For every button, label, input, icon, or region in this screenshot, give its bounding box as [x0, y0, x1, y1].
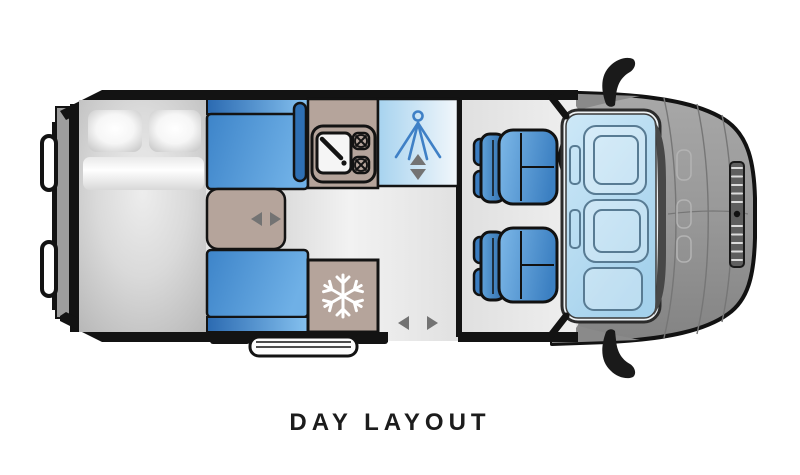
rear-door-panel: [56, 107, 70, 318]
page-background: DAY LAYOUT: [0, 0, 800, 475]
shower-room: [378, 99, 458, 186]
fridge: [308, 260, 378, 332]
rear-bed: [79, 100, 206, 332]
pillow: [88, 110, 142, 152]
layout-title: DAY LAYOUT: [0, 409, 790, 437]
bench-side-cushion: [294, 103, 306, 181]
rear-door-handle: [42, 242, 56, 296]
passenger-seat: [474, 228, 557, 302]
rear-door-handle: [42, 136, 56, 190]
front-grille: [730, 162, 744, 267]
bench-backrest-strip: [207, 317, 308, 332]
bed-sheet: [83, 157, 204, 190]
dinette-bench-rear: [207, 250, 308, 317]
windshield: [552, 98, 666, 334]
sink-icon: [317, 133, 351, 173]
driver-seat: [474, 130, 557, 204]
kitchen-unit: [308, 99, 378, 188]
campervan-floorplan: [0, 0, 800, 475]
entry-step: [210, 334, 388, 356]
rear-doors: [42, 107, 70, 318]
grille-badge: [734, 211, 740, 217]
pillow: [149, 110, 201, 152]
